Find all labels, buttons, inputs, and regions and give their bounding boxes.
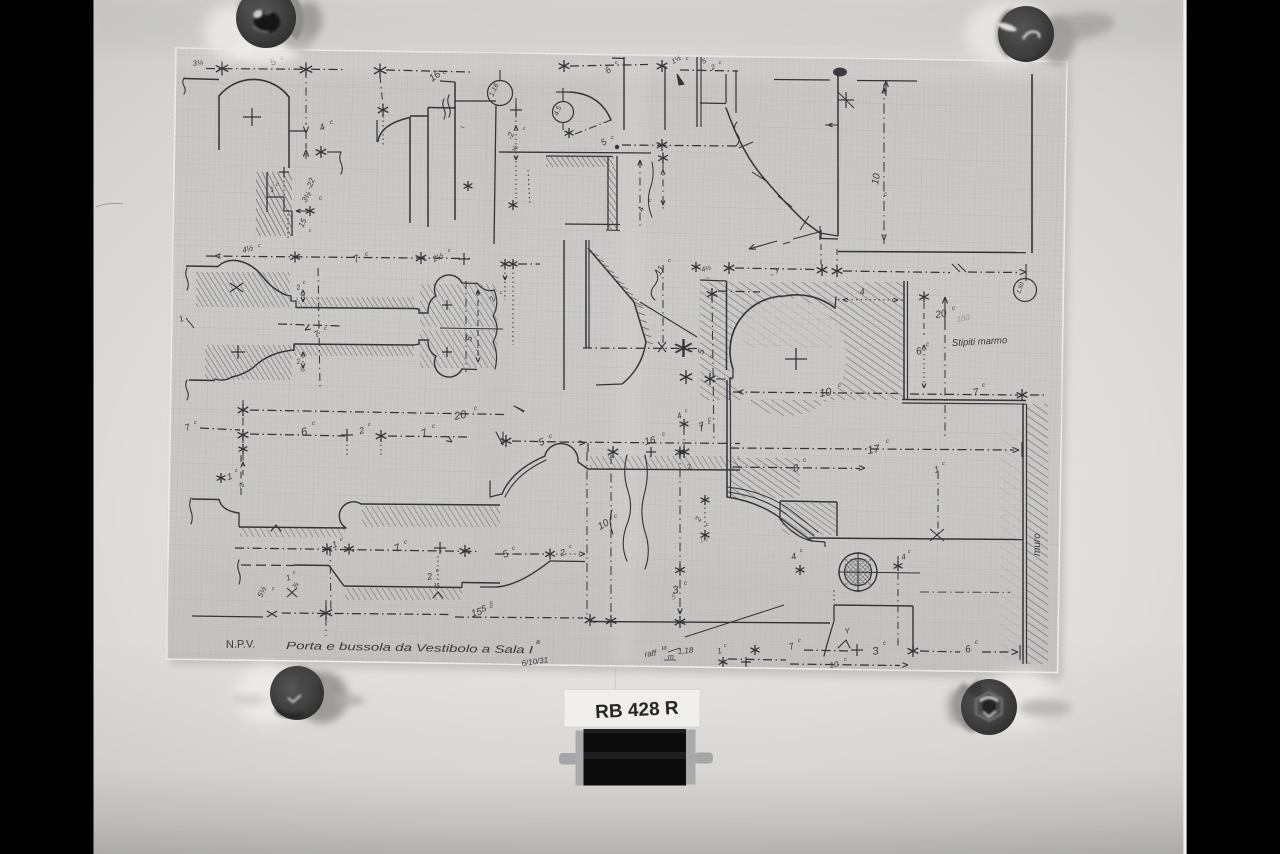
svg-text:c: c <box>611 135 614 141</box>
svg-text:c: c <box>490 600 493 606</box>
svg-text:c: c <box>319 196 322 202</box>
svg-text:½: ½ <box>434 582 440 590</box>
svg-text:c: c <box>684 581 687 587</box>
svg-text:muro: muro <box>1032 533 1043 556</box>
svg-text:½: ½ <box>300 367 305 374</box>
svg-text:c: c <box>312 421 315 427</box>
svg-text:~: ~ <box>706 276 710 282</box>
svg-text:c: c <box>512 546 515 552</box>
svg-text:½: ½ <box>300 293 305 300</box>
svg-text:c: c <box>432 424 435 430</box>
svg-text:c: c <box>194 420 197 426</box>
svg-text:a: a <box>536 639 540 646</box>
svg-text:c: c <box>982 383 985 389</box>
svg-text:c: c <box>404 540 407 546</box>
svg-text:c: c <box>549 434 552 440</box>
svg-text:c: c <box>942 461 945 467</box>
svg-text:N.P.V.: N.P.V. <box>226 638 256 651</box>
svg-text:c: c <box>883 641 886 647</box>
svg-text:c: c <box>710 354 713 360</box>
svg-text:c: c <box>838 383 841 389</box>
svg-text:3¼: 3¼ <box>192 58 204 68</box>
svg-text:RB 428 R: RB 428 R <box>595 698 680 723</box>
svg-text:c: c <box>443 70 446 76</box>
svg-text:c: c <box>662 432 665 438</box>
svg-text:c: c <box>340 537 343 543</box>
svg-text:raff: raff <box>644 648 657 659</box>
svg-text:c: c <box>235 468 238 474</box>
svg-text:~: ~ <box>770 273 774 279</box>
svg-text:20: 20 <box>934 308 948 321</box>
svg-text:c: c <box>952 306 955 312</box>
svg-text:c: c <box>800 548 803 554</box>
svg-text:c: c <box>975 640 978 646</box>
svg-text:c: c <box>886 439 889 445</box>
svg-text:1,18: 1,18 <box>677 646 694 656</box>
svg-text:c: c <box>798 638 801 644</box>
svg-text:c: c <box>330 120 333 126</box>
svg-text:c: c <box>615 60 618 66</box>
svg-text:c: c <box>569 544 572 550</box>
svg-text:c: c <box>884 192 887 198</box>
svg-text:c: c <box>668 258 671 264</box>
svg-text:c: c <box>474 406 477 412</box>
svg-text:c: c <box>926 342 929 348</box>
svg-text:c: c <box>477 344 480 350</box>
svg-text:c: c <box>708 417 711 423</box>
svg-text:c: c <box>803 458 806 464</box>
svg-text:c: c <box>614 514 617 520</box>
svg-text:c: c <box>324 326 327 332</box>
svg-text:~: ~ <box>460 123 465 132</box>
svg-text:c: c <box>368 422 371 428</box>
svg-text:c: c <box>365 252 368 258</box>
